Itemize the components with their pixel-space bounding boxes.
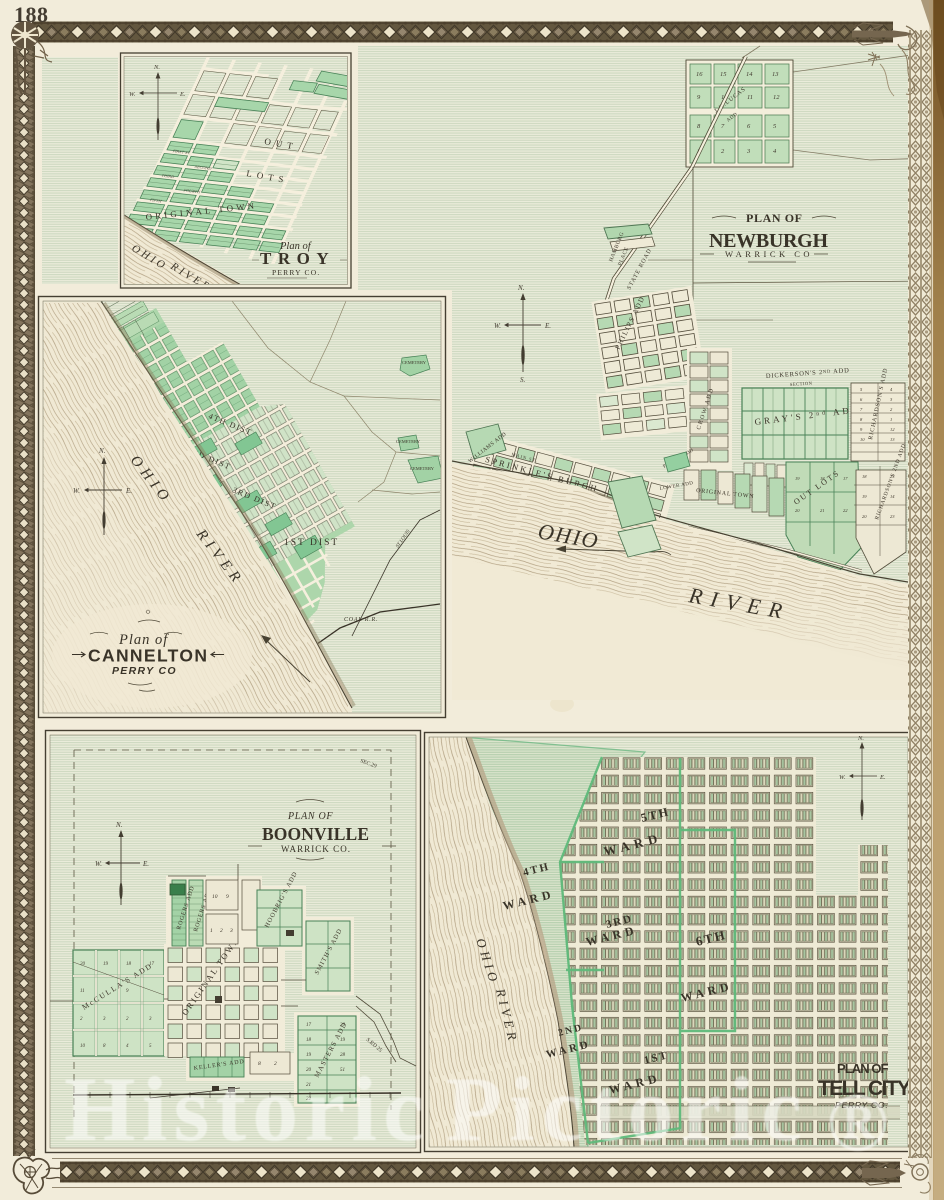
svg-text:Historic: Historic (64, 1058, 424, 1160)
svg-text:®: ® (826, 1076, 889, 1169)
